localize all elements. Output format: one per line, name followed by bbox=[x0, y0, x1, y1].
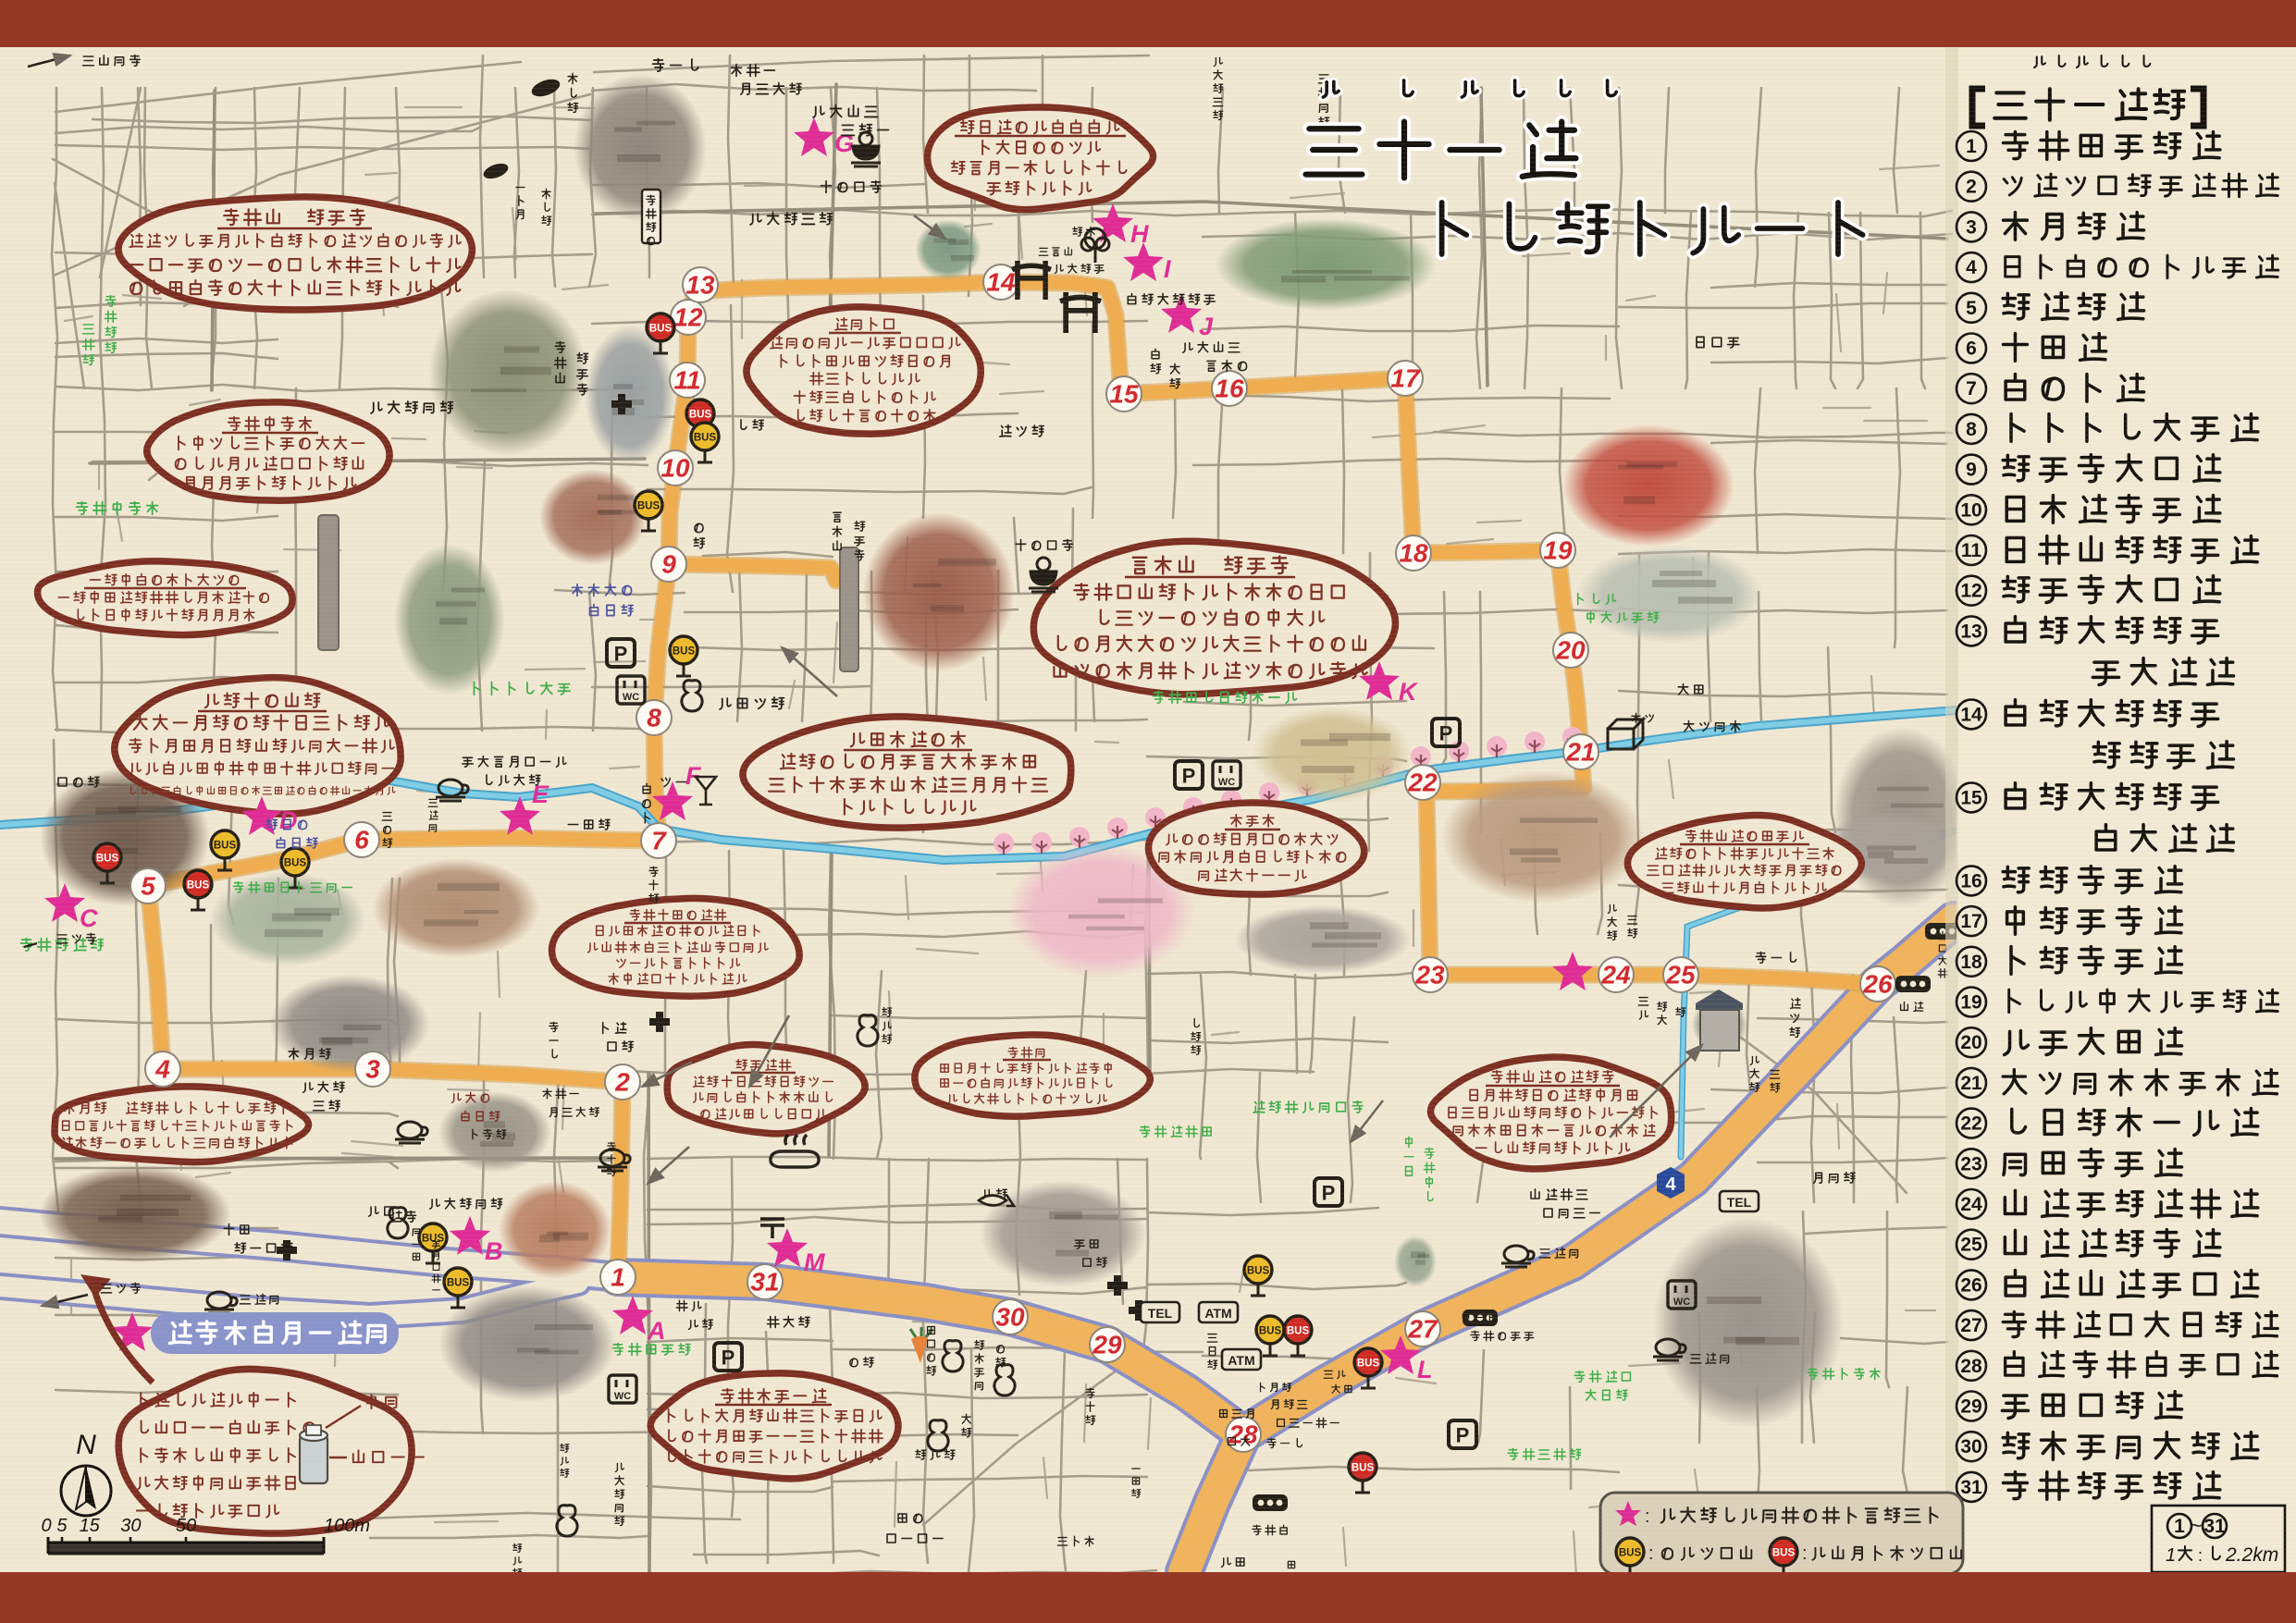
svg-text:6: 6 bbox=[354, 826, 369, 855]
svg-text:19: 19 bbox=[1960, 992, 1981, 1014]
svg-text:N: N bbox=[76, 1430, 96, 1460]
svg-text:26: 26 bbox=[1960, 1274, 1981, 1296]
svg-text:WC: WC bbox=[623, 692, 639, 703]
svg-text:21: 21 bbox=[1960, 1073, 1982, 1094]
svg-text:24: 24 bbox=[1960, 1194, 1982, 1215]
svg-text:TEL: TEL bbox=[1727, 1195, 1752, 1210]
svg-text:BUS: BUS bbox=[214, 841, 237, 852]
svg-text:31: 31 bbox=[2203, 1516, 2226, 1537]
svg-text:ATM: ATM bbox=[1228, 1353, 1254, 1368]
svg-text:30: 30 bbox=[120, 1516, 141, 1536]
svg-text:~: ~ bbox=[2191, 1514, 2203, 1537]
svg-text:0: 0 bbox=[41, 1516, 51, 1536]
svg-text:7: 7 bbox=[651, 827, 667, 855]
svg-text:17: 17 bbox=[1960, 911, 1981, 932]
svg-text:3: 3 bbox=[1966, 216, 1977, 238]
svg-text::: : bbox=[1802, 1543, 1808, 1564]
svg-text:2: 2 bbox=[1966, 177, 1977, 198]
svg-text:13: 13 bbox=[1960, 621, 1981, 642]
svg-text:13: 13 bbox=[685, 271, 715, 300]
svg-text:12: 12 bbox=[673, 303, 703, 332]
svg-text:25: 25 bbox=[1960, 1235, 1982, 1256]
svg-text:K: K bbox=[1399, 678, 1419, 706]
svg-text:23: 23 bbox=[1414, 961, 1445, 990]
svg-text:10: 10 bbox=[660, 454, 690, 483]
svg-text:G: G bbox=[834, 129, 854, 157]
svg-text:27: 27 bbox=[1407, 1315, 1438, 1344]
svg-text:23: 23 bbox=[1960, 1153, 1981, 1174]
svg-text:BUS: BUS bbox=[187, 880, 210, 891]
svg-text:29: 29 bbox=[1960, 1396, 1981, 1418]
svg-text:WC: WC bbox=[1673, 1297, 1690, 1308]
svg-text:A: A bbox=[647, 1317, 666, 1345]
svg-text:17: 17 bbox=[1390, 364, 1421, 393]
svg-text:1: 1 bbox=[2174, 1516, 2185, 1537]
svg-text:29: 29 bbox=[1092, 1331, 1122, 1359]
svg-text:C: C bbox=[80, 904, 98, 932]
svg-text:BUS: BUS bbox=[694, 433, 717, 444]
svg-text:11: 11 bbox=[673, 366, 700, 395]
svg-text:BUS: BUS bbox=[637, 501, 660, 512]
svg-text:BUS: BUS bbox=[649, 324, 673, 335]
svg-text:100m: 100m bbox=[324, 1516, 370, 1536]
svg-text:14: 14 bbox=[1960, 704, 1982, 725]
svg-text:WC: WC bbox=[614, 1391, 631, 1402]
svg-text:2: 2 bbox=[614, 1068, 630, 1097]
svg-text:24: 24 bbox=[1600, 961, 1631, 990]
svg-text:31: 31 bbox=[1960, 1477, 1982, 1498]
svg-text:15: 15 bbox=[80, 1516, 101, 1536]
svg-text:16: 16 bbox=[1215, 375, 1244, 403]
svg-text:5: 5 bbox=[56, 1516, 68, 1536]
svg-text:BUS: BUS bbox=[1352, 1463, 1375, 1474]
svg-text:12: 12 bbox=[1960, 581, 1981, 602]
svg-text:18: 18 bbox=[1399, 539, 1428, 568]
svg-text:L: L bbox=[1417, 1356, 1433, 1383]
svg-text:TEL: TEL bbox=[1148, 1306, 1173, 1321]
svg-text:E: E bbox=[532, 781, 549, 808]
svg-text:WC: WC bbox=[1218, 777, 1235, 788]
svg-text:B: B bbox=[485, 1237, 503, 1265]
svg-text::: : bbox=[2198, 1546, 2203, 1565]
svg-text:10: 10 bbox=[1960, 499, 1981, 521]
svg-text:7: 7 bbox=[1966, 378, 1977, 400]
svg-text:25: 25 bbox=[1665, 961, 1696, 990]
svg-text:BUS: BUS bbox=[689, 410, 712, 421]
svg-text:15: 15 bbox=[1960, 787, 1982, 808]
svg-text:18: 18 bbox=[1960, 952, 1982, 973]
svg-text:5: 5 bbox=[141, 872, 155, 901]
svg-text:BUS: BUS bbox=[284, 858, 307, 869]
svg-text:I: I bbox=[1164, 255, 1171, 283]
svg-text:M: M bbox=[804, 1248, 825, 1276]
svg-text:20: 20 bbox=[1960, 1032, 1981, 1053]
svg-text:P: P bbox=[614, 642, 628, 665]
svg-text:P: P bbox=[1322, 1181, 1336, 1204]
svg-text:30: 30 bbox=[995, 1303, 1025, 1332]
svg-text:BUS: BUS bbox=[1259, 1326, 1282, 1337]
svg-text:BUS: BUS bbox=[1772, 1548, 1796, 1559]
svg-text:9: 9 bbox=[661, 550, 676, 579]
svg-text:28: 28 bbox=[1960, 1356, 1982, 1377]
svg-text:ATM: ATM bbox=[1204, 1306, 1231, 1321]
svg-text:BUS: BUS bbox=[1619, 1548, 1642, 1559]
svg-text:4: 4 bbox=[1665, 1174, 1676, 1195]
svg-text:1: 1 bbox=[1966, 136, 1977, 157]
svg-text:9: 9 bbox=[1966, 460, 1977, 481]
svg-text:BUS: BUS bbox=[1287, 1326, 1310, 1337]
svg-text:1: 1 bbox=[2166, 1545, 2176, 1566]
svg-text:31: 31 bbox=[750, 1268, 779, 1297]
svg-text:20: 20 bbox=[1555, 636, 1586, 665]
svg-text::: : bbox=[1648, 1543, 1654, 1564]
svg-text:30: 30 bbox=[1960, 1436, 1981, 1457]
svg-text:BUS: BUS bbox=[422, 1234, 445, 1245]
svg-text:BUS: BUS bbox=[96, 854, 119, 865]
svg-text:26: 26 bbox=[1862, 970, 1893, 999]
svg-text:BUS: BUS bbox=[447, 1278, 470, 1289]
svg-text:H: H bbox=[1130, 220, 1149, 248]
svg-text::: : bbox=[1645, 1506, 1650, 1527]
svg-text:27: 27 bbox=[1960, 1315, 1981, 1336]
svg-text:BUS: BUS bbox=[1247, 1266, 1270, 1277]
svg-text:2.2km: 2.2km bbox=[2225, 1544, 2278, 1566]
svg-text:J: J bbox=[1199, 313, 1214, 340]
svg-text:14: 14 bbox=[986, 268, 1016, 297]
svg-text:11: 11 bbox=[1961, 540, 1982, 561]
svg-text:P: P bbox=[1439, 721, 1453, 744]
svg-text:P: P bbox=[1456, 1423, 1470, 1446]
svg-text:P: P bbox=[1182, 764, 1196, 787]
svg-text:5: 5 bbox=[1966, 298, 1977, 319]
svg-text:8: 8 bbox=[1966, 419, 1977, 440]
svg-text:19: 19 bbox=[1543, 536, 1573, 565]
svg-text:BUS: BUS bbox=[673, 646, 696, 658]
svg-text:6: 6 bbox=[1966, 338, 1977, 360]
svg-text:1: 1 bbox=[611, 1263, 625, 1292]
svg-text:22: 22 bbox=[1407, 768, 1438, 797]
svg-text:21: 21 bbox=[1565, 738, 1595, 767]
svg-text:16: 16 bbox=[1960, 870, 1981, 891]
svg-text:3: 3 bbox=[365, 1055, 380, 1084]
svg-text:BUS: BUS bbox=[1357, 1359, 1380, 1370]
svg-text:8: 8 bbox=[647, 704, 661, 732]
svg-text:50: 50 bbox=[176, 1516, 196, 1536]
svg-text:4: 4 bbox=[154, 1055, 170, 1084]
svg-text:4: 4 bbox=[1966, 257, 1977, 278]
svg-text:15: 15 bbox=[1109, 380, 1139, 409]
svg-text:22: 22 bbox=[1960, 1113, 1981, 1135]
svg-text:P: P bbox=[722, 1346, 735, 1369]
